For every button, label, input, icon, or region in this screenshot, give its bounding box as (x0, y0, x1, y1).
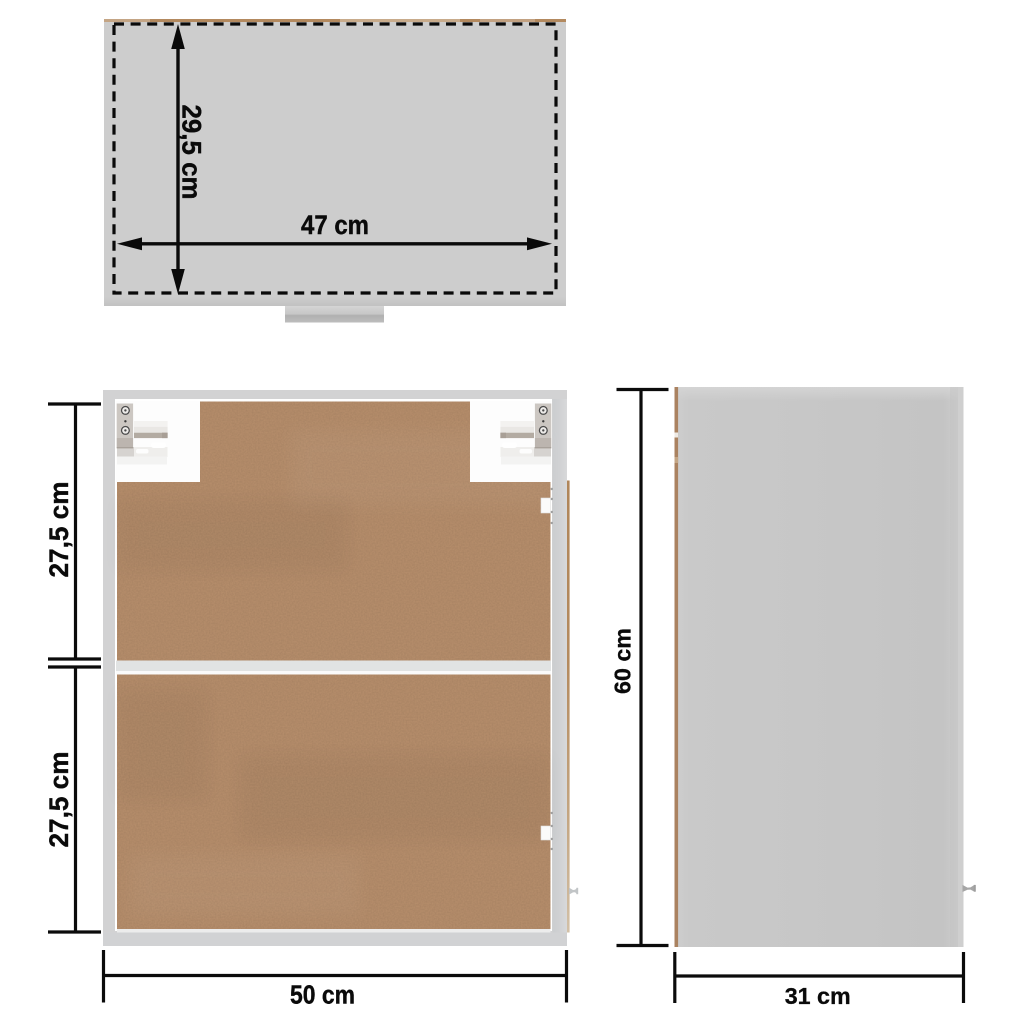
svg-text:60 cm: 60 cm (609, 628, 635, 694)
svg-text:47 cm: 47 cm (301, 210, 369, 240)
svg-text:27,5 cm: 27,5 cm (44, 482, 74, 578)
svg-text:50 cm: 50 cm (290, 980, 355, 1010)
svg-text:27,5 cm: 27,5 cm (44, 752, 74, 848)
svg-text:29,5 cm: 29,5 cm (176, 105, 206, 200)
svg-text:31 cm: 31 cm (785, 983, 851, 1009)
